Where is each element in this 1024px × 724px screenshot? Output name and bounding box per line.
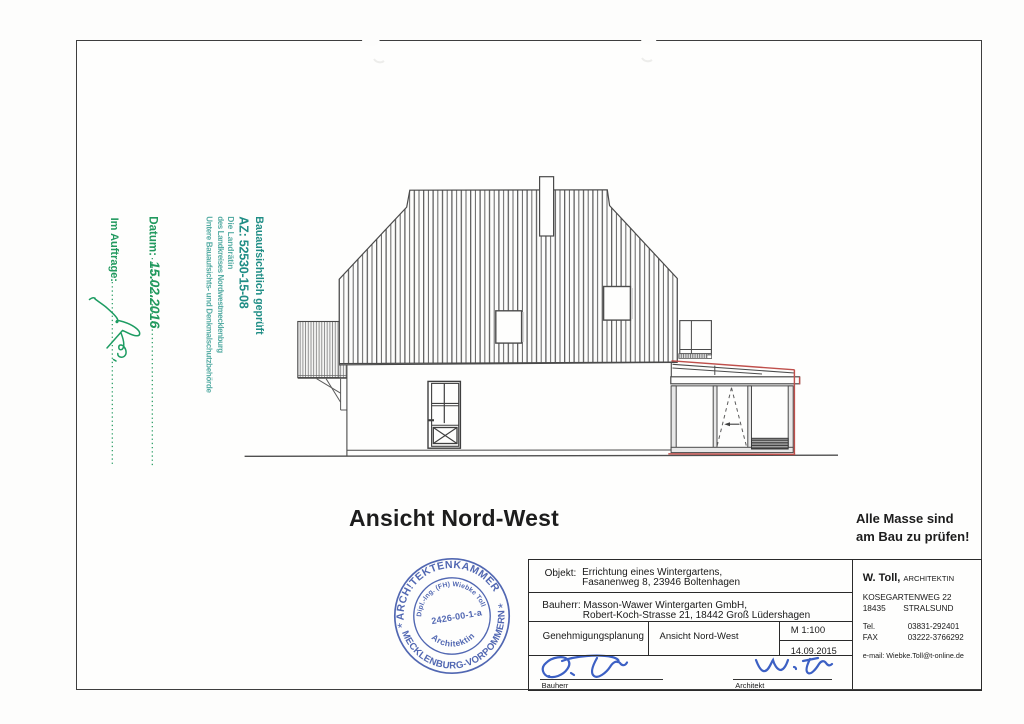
svg-text:Architektin: Architektin [429, 625, 478, 652]
svg-text:Bauaufsichtlich geprüft: Bauaufsichtlich geprüft [253, 216, 265, 335]
svg-text:2426-00-1-a: 2426-00-1-a [431, 607, 484, 626]
svg-text:Die Landrätin: Die Landrätin [226, 216, 236, 269]
svg-text:AZ: 52530-15-08: AZ: 52530-15-08 [237, 216, 251, 308]
svg-text:des Landkreises Nordwestmeckle: des Landkreises Nordwestmecklenburg [216, 216, 225, 353]
svg-text:Untere Bauaufsichts- und Denkm: Untere Bauaufsichts- und Denkmalschutzbe… [205, 216, 214, 393]
svg-text:Im Auftrage:: Im Auftrage: [108, 218, 120, 282]
svg-text:Datum:: Datum: [147, 216, 159, 256]
svg-text:15.02.2016: 15.02.2016 [147, 261, 163, 329]
